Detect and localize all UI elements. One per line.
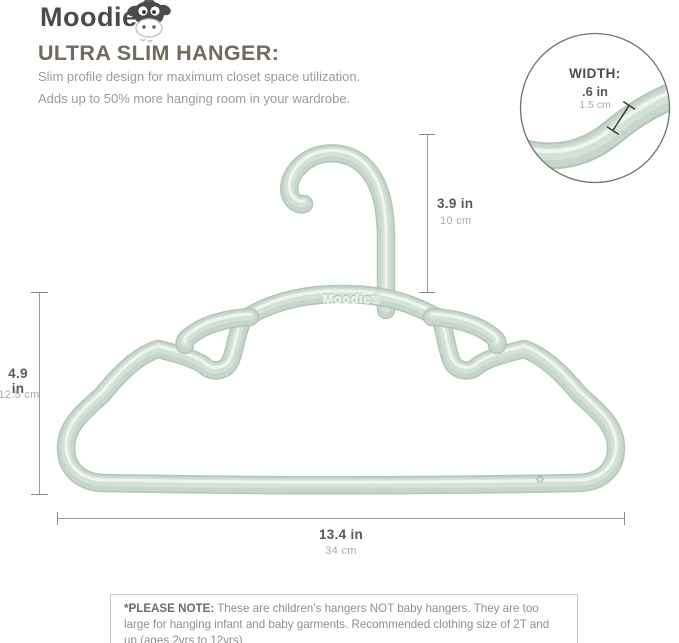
callout-width-cm: 1.5 cm	[535, 99, 655, 111]
note-label: *PLEASE NOTE:	[124, 602, 214, 615]
embossed-brand-text: Moodie®	[312, 292, 392, 306]
width-cm: 34 cm	[57, 545, 625, 557]
hook-height-cm: 10 cm	[440, 215, 471, 227]
width-dimension-line	[57, 518, 625, 519]
callout-width-inches: .6 in	[535, 84, 655, 99]
width-inches: 13.4 in	[57, 527, 625, 542]
callout-width-label: WIDTH:	[535, 66, 655, 81]
width-tick-left	[57, 512, 58, 525]
width-tick-right	[624, 512, 625, 525]
hook-height-dimension-line	[427, 134, 428, 293]
hook-height-tick-top	[419, 134, 435, 135]
page-title: ULTRA SLIM HANGER:	[38, 41, 279, 66]
subtitle-line-1: Slim profile design for maximum closet s…	[38, 69, 360, 84]
note-box: *PLEASE NOTE:These are children’s hanger…	[110, 594, 578, 643]
hook-height-inches: 3.9 in	[437, 196, 473, 211]
subtitle-line-2: Adds up to 50% more hanging room in your…	[38, 91, 350, 106]
body-height-cm: 12.5 cm	[0, 389, 40, 401]
recycle-icon: ♻	[535, 473, 545, 486]
product-infographic: Moodie ULTRA SLIM HANGER: Slim profile d…	[0, 0, 679, 643]
hanger-body	[66, 291, 616, 485]
cow-mascot-icon	[121, 0, 177, 44]
hook-height-tick-bottom	[419, 292, 435, 293]
body-height-tick-top	[31, 292, 48, 293]
body-height-tick-bottom	[31, 494, 48, 495]
